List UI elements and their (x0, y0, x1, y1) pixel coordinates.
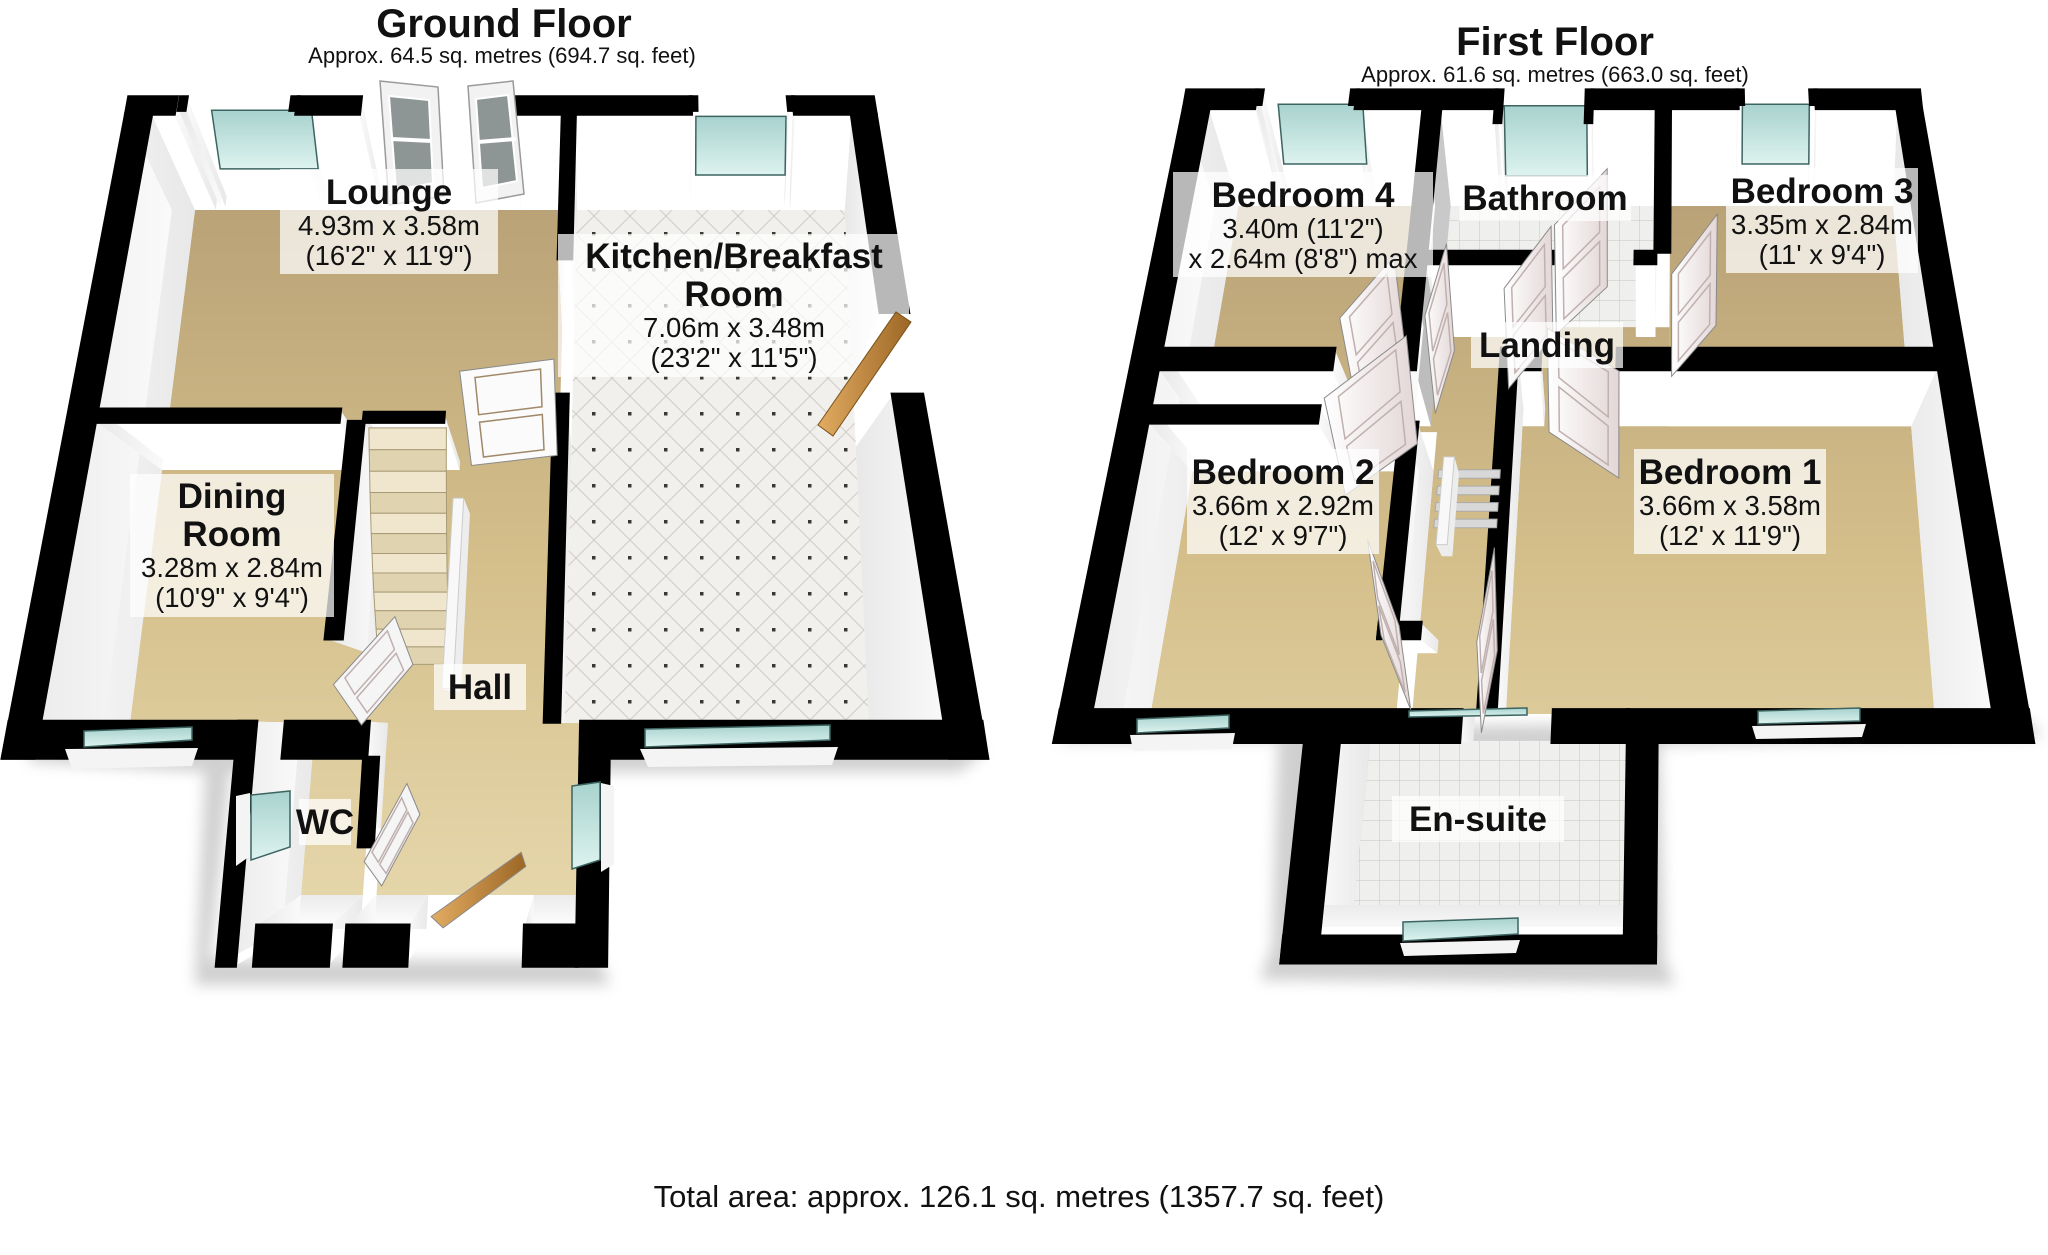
svg-text:Bedroom 4: Bedroom 4 (1212, 176, 1395, 215)
svg-text:7.06m x 3.48m: 7.06m x 3.48m (643, 312, 825, 343)
svg-text:First Floor: First Floor (1456, 20, 1654, 64)
svg-text:Dining: Dining (178, 477, 287, 516)
svg-text:(23'2" x 11'5"): (23'2" x 11'5") (650, 342, 817, 373)
svg-text:Lounge: Lounge (326, 173, 452, 212)
svg-text:Kitchen/Breakfast: Kitchen/Breakfast (585, 237, 883, 276)
svg-text:Room: Room (182, 515, 281, 554)
svg-text:(12' x 9'7"): (12' x 9'7") (1219, 520, 1348, 551)
svg-text:En-suite: En-suite (1409, 800, 1547, 839)
svg-text:Approx. 61.6 sq. metres (663.0: Approx. 61.6 sq. metres (663.0 sq. feet) (1361, 62, 1749, 87)
svg-text:(11' x 9'4"): (11' x 9'4") (1759, 239, 1886, 270)
svg-text:Ground Floor: Ground Floor (376, 2, 632, 46)
svg-text:Approx. 64.5 sq. metres (694.7: Approx. 64.5 sq. metres (694.7 sq. feet) (308, 43, 696, 68)
svg-text:3.66m x 3.58m: 3.66m x 3.58m (1639, 490, 1821, 521)
svg-text:Bedroom 3: Bedroom 3 (1731, 172, 1914, 211)
svg-text:3.40m (11'2"): 3.40m (11'2") (1222, 213, 1383, 244)
svg-text:Bedroom 2: Bedroom 2 (1192, 453, 1375, 492)
svg-text:3.66m x 2.92m: 3.66m x 2.92m (1192, 490, 1374, 521)
svg-text:4.93m x 3.58m: 4.93m x 3.58m (298, 210, 480, 241)
svg-text:Total area: approx. 126.1 sq.: Total area: approx. 126.1 sq. metres (13… (654, 1179, 1385, 1214)
svg-text:3.28m x 2.84m: 3.28m x 2.84m (141, 552, 323, 583)
svg-text:WC: WC (296, 803, 354, 842)
svg-text:x 2.64m (8'8") max: x 2.64m (8'8") max (1189, 243, 1418, 274)
svg-text:(12' x 11'9"): (12' x 11'9") (1659, 520, 1801, 551)
svg-text:Room: Room (684, 275, 783, 314)
svg-text:Landing: Landing (1479, 326, 1615, 365)
svg-text:3.35m x 2.84m: 3.35m x 2.84m (1731, 209, 1913, 240)
svg-text:(10'9" x 9'4"): (10'9" x 9'4") (155, 582, 309, 613)
svg-text:Bedroom 1: Bedroom 1 (1639, 453, 1822, 492)
svg-text:(16'2" x 11'9"): (16'2" x 11'9") (305, 240, 472, 271)
svg-text:Hall: Hall (448, 668, 512, 707)
svg-text:Bathroom: Bathroom (1462, 179, 1627, 218)
